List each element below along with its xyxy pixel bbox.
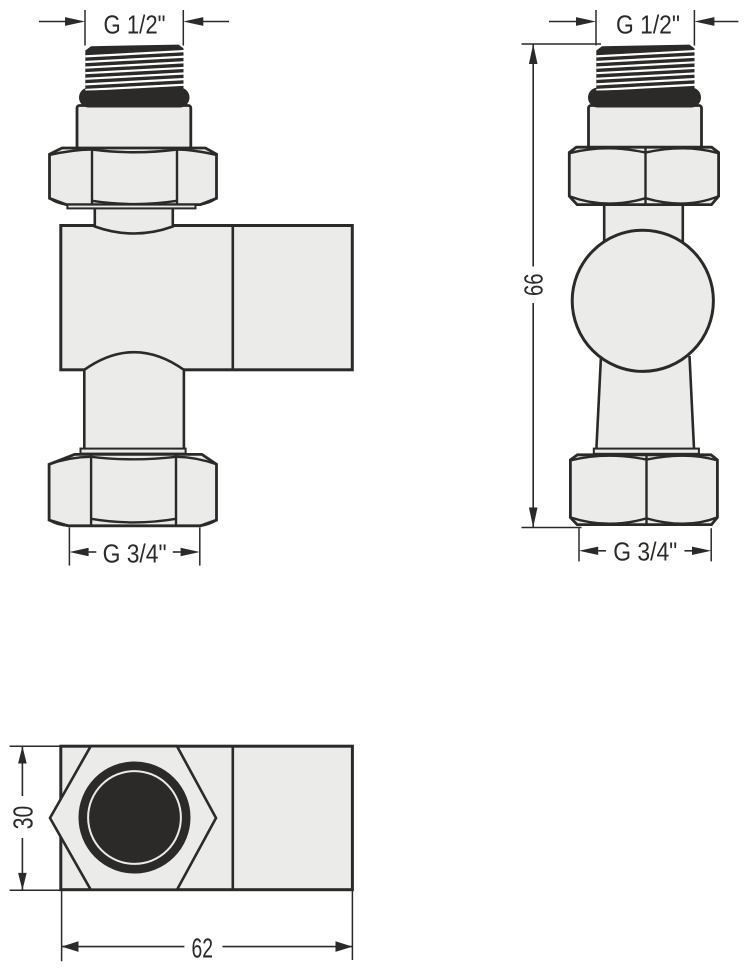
svg-text:G 3/4": G 3/4" <box>613 536 677 566</box>
svg-text:G 3/4": G 3/4" <box>103 538 167 568</box>
svg-text:G 1/2": G 1/2" <box>616 10 680 40</box>
svg-text:G 1/2": G 1/2" <box>104 10 166 40</box>
svg-text:66: 66 <box>520 274 548 297</box>
svg-text:30: 30 <box>8 806 39 830</box>
svg-text:62: 62 <box>192 933 214 964</box>
